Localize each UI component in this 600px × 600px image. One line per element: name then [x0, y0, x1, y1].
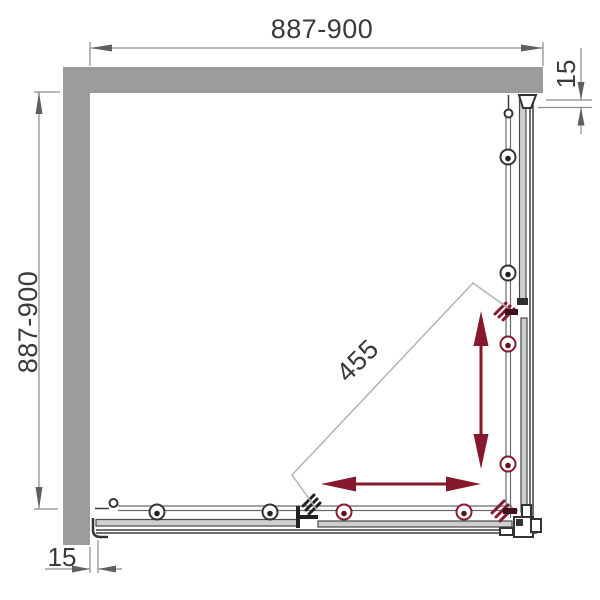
top-width-dimension: 887-900	[90, 14, 543, 66]
vertical-slide-direction-arrow	[474, 311, 489, 469]
right-fixed-glass-panel	[520, 96, 527, 302]
shower-enclosure-drawing: 455 887-900 887-900 15 15	[0, 0, 600, 600]
diagonal-dimension-label: 455	[331, 334, 385, 388]
roller-set	[150, 150, 516, 520]
roller-icon	[501, 150, 516, 165]
right-profile-dimension: 15	[538, 48, 592, 134]
track-adjuster-knob-icon	[110, 499, 118, 507]
track-adjuster-knob-icon	[505, 110, 513, 118]
right-profile-dimension-label: 15	[551, 60, 581, 89]
drawing-svg: 455 887-900 887-900 15 15	[0, 0, 600, 600]
roller-icon	[150, 505, 165, 520]
top-wall	[63, 67, 543, 93]
left-depth-dimension-label: 887-900	[13, 271, 43, 374]
right-sliding-door-glass	[521, 318, 527, 512]
top-width-dimension-label: 887-900	[271, 14, 374, 44]
diagonal-dimension: 455	[292, 283, 508, 510]
horizontal-slide-direction-arrow	[321, 477, 481, 492]
bottom-fixed-glass-panel	[96, 520, 298, 527]
bottom-sliding-door-glass	[318, 521, 512, 527]
roller-icon	[501, 266, 516, 281]
roller-icon	[457, 505, 472, 520]
roller-icon	[501, 457, 516, 472]
roller-icon	[263, 505, 278, 520]
roller-icon	[337, 505, 352, 520]
bottom-door-edge-bracket	[296, 495, 320, 528]
bottom-profile-dimension-label: 15	[48, 542, 77, 572]
right-fixed-panel-end-cap	[517, 298, 528, 305]
left-depth-dimension: 887-900	[13, 92, 60, 509]
roller-icon	[501, 337, 516, 352]
left-wall	[63, 67, 90, 545]
